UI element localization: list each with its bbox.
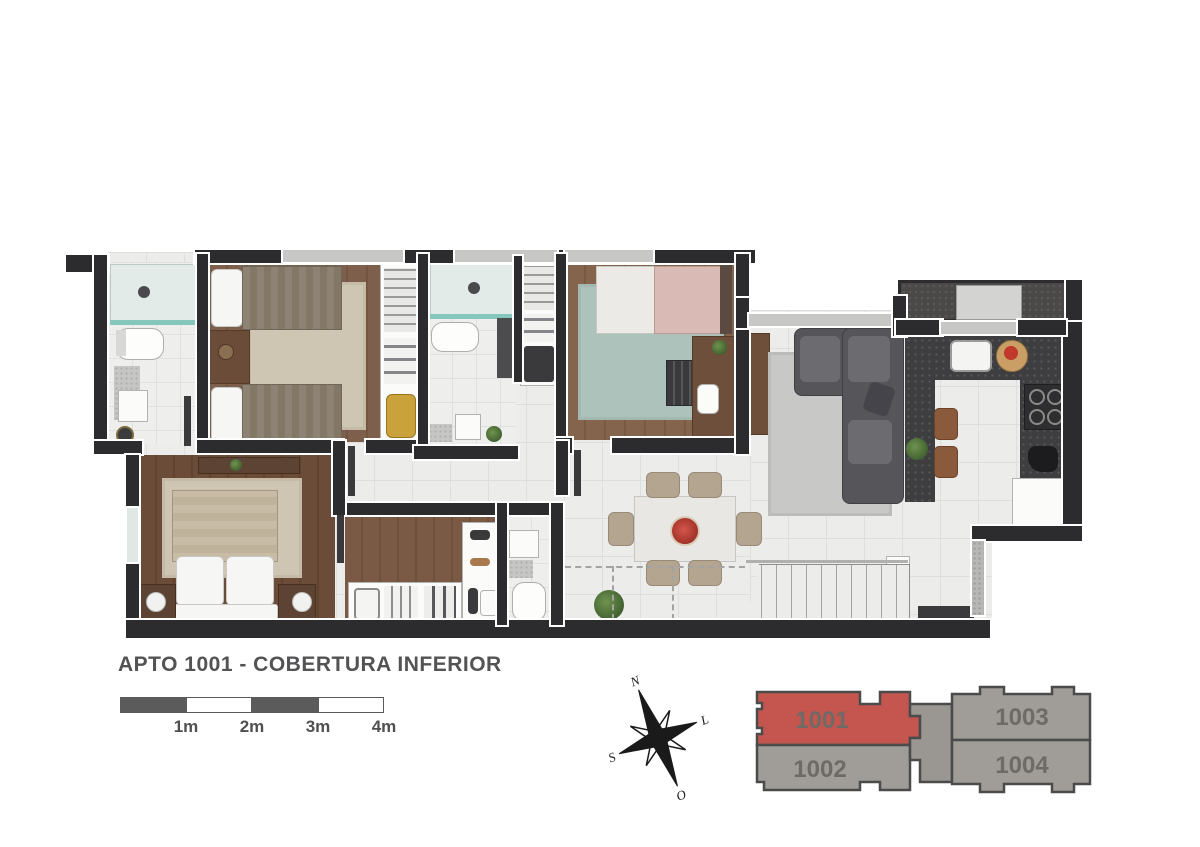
stair-rail bbox=[746, 560, 908, 563]
sliding-door-threshold bbox=[918, 606, 974, 619]
service-appliance bbox=[956, 285, 1022, 320]
projection-line-1 bbox=[612, 566, 614, 620]
shoe-pair-1-icon bbox=[470, 530, 490, 540]
closet2-hangers-icon bbox=[524, 266, 554, 310]
closet1-shoes-icon bbox=[384, 338, 416, 384]
scale-segment-3 bbox=[252, 697, 318, 713]
dining-chair-right bbox=[736, 512, 762, 546]
wardrobe-bag-icon bbox=[354, 588, 380, 620]
wall-closet2-bedroom2 bbox=[556, 254, 566, 452]
nightstand-right-stool-icon bbox=[292, 592, 312, 612]
coffee-maker-icon bbox=[1028, 446, 1058, 472]
wall-left bbox=[94, 255, 107, 455]
stove-burner-1 bbox=[1029, 389, 1045, 405]
page-title: APTO 1001 - COBERTURA INFERIOR bbox=[118, 653, 502, 677]
master-sideboard bbox=[198, 457, 300, 474]
wardrobe-hangers-icon bbox=[384, 586, 418, 618]
compass-south-label: S bbox=[606, 749, 618, 766]
key-plan-label-1003: 1003 bbox=[995, 704, 1048, 731]
scale-label-1m: 1m bbox=[164, 717, 208, 737]
dining-chair-left bbox=[608, 512, 634, 546]
double-bed-blanket bbox=[654, 266, 722, 334]
twin-bed2-pillow bbox=[211, 387, 243, 443]
shower-glass-panel bbox=[110, 320, 196, 325]
key-plan: 1001 1002 1003 1004 bbox=[752, 682, 1097, 812]
closet1-bag-icon bbox=[386, 394, 416, 438]
scale-label-4m: 4m bbox=[362, 717, 406, 737]
kitchen-sink bbox=[950, 340, 992, 372]
wall-bedroom2-living bbox=[736, 254, 749, 454]
window-living bbox=[749, 314, 895, 326]
sink-vanity bbox=[118, 390, 148, 422]
stove-burner-4 bbox=[1047, 409, 1063, 425]
double-bed-mattress bbox=[596, 266, 656, 334]
scale-segment-2 bbox=[186, 697, 252, 713]
toilet2 bbox=[431, 322, 479, 352]
compass-star-icon: N L S O bbox=[598, 668, 718, 808]
window-kitchen bbox=[941, 322, 1019, 334]
scale-segment-4 bbox=[318, 697, 384, 713]
wall-living-jamb-left bbox=[736, 298, 749, 328]
island-plant-icon bbox=[906, 438, 928, 460]
bath3-mat bbox=[509, 560, 533, 578]
wall-bath3-right bbox=[551, 503, 563, 625]
window-bedroom1 bbox=[283, 250, 403, 262]
stairs bbox=[746, 564, 910, 622]
key-plan-diagram: 1001 1002 1003 1004 bbox=[752, 682, 1097, 807]
compass-west-label: O bbox=[674, 786, 689, 804]
toilet-cistern bbox=[116, 330, 126, 356]
door-bedroom2 bbox=[574, 450, 581, 496]
wall-bathroom2-left bbox=[418, 254, 428, 453]
sofa-cushion-3 bbox=[848, 420, 892, 464]
wall-bedroom1-bottom-a bbox=[197, 440, 343, 453]
shower2-head-icon bbox=[468, 282, 480, 294]
door-bedroom1 bbox=[348, 446, 355, 496]
wall-bath3-left bbox=[497, 503, 507, 625]
wall-bath1-bedroom1 bbox=[197, 254, 208, 452]
wall-kitchen-jamb-left bbox=[896, 320, 942, 335]
sideboard-plant-icon bbox=[230, 459, 242, 471]
bath3-vanity bbox=[509, 530, 539, 558]
wall-master-right-stub bbox=[333, 441, 345, 515]
compass-rose: N L S O bbox=[598, 668, 718, 813]
dining-chair-top1 bbox=[646, 472, 680, 498]
desk-chair bbox=[697, 384, 719, 414]
outside-mask-right bbox=[992, 543, 1200, 663]
window-bedroom2 bbox=[565, 250, 653, 262]
dining-chair-bottom2 bbox=[688, 560, 722, 586]
shoe-basket-icon bbox=[480, 590, 498, 616]
wall-kitchen-right bbox=[1063, 322, 1082, 542]
closet2-drawers bbox=[524, 346, 554, 382]
master-bed-pillow-left bbox=[176, 556, 224, 606]
wardrobe-shoes-icon bbox=[424, 586, 456, 618]
dining-chair-top2 bbox=[688, 472, 722, 498]
desk-plant-icon bbox=[712, 340, 727, 355]
key-plan-core-shape bbox=[910, 704, 952, 782]
twin-bed1 bbox=[242, 266, 342, 330]
fridge bbox=[1012, 478, 1062, 528]
key-plan-label-1001: 1001 bbox=[795, 707, 848, 734]
shower-head-icon bbox=[138, 286, 150, 298]
nightstand-left-stool-icon bbox=[146, 592, 166, 612]
scale-label-2m: 2m bbox=[230, 717, 274, 737]
scale-segment-1 bbox=[120, 697, 186, 713]
window-bathroom2 bbox=[455, 250, 557, 262]
wall-bath2-closet2 bbox=[514, 256, 522, 382]
sofa-cushion-1 bbox=[800, 336, 840, 382]
dining-chair-bottom1 bbox=[646, 560, 680, 586]
outside-mask-left bbox=[58, 456, 124, 656]
upper-floor-projection-line bbox=[565, 566, 745, 568]
twin-bed1-pillow bbox=[211, 269, 243, 327]
floor-plan-page: APTO 1001 - COBERTURA INFERIOR 1m 2m 3m … bbox=[0, 0, 1200, 847]
hall-sink bbox=[455, 414, 481, 440]
twin-bed2 bbox=[242, 384, 342, 444]
double-bed-headboard bbox=[720, 264, 732, 334]
tomatoes-icon bbox=[1004, 346, 1018, 360]
tv-panel bbox=[748, 333, 770, 435]
wall-kitchen-bottom bbox=[972, 526, 1082, 541]
shoe-pair-2-icon bbox=[470, 558, 490, 566]
wall-dining-left-stub bbox=[556, 441, 568, 495]
scale-label-3m: 3m bbox=[296, 717, 340, 737]
stove-burner-2 bbox=[1047, 389, 1063, 405]
wall-bedroom2-bottom-b bbox=[612, 438, 740, 453]
compass-east-label: L bbox=[697, 711, 710, 728]
bar-stool-1 bbox=[934, 408, 958, 440]
projection-line-2 bbox=[672, 566, 674, 620]
wall-hall-bath2-bottom bbox=[414, 446, 518, 459]
nightstand-decor-icon bbox=[218, 344, 234, 360]
master-bed-blanket bbox=[172, 490, 278, 562]
door-corridor bbox=[337, 515, 344, 563]
wall-bath1-bottom bbox=[94, 441, 142, 454]
hall-mat bbox=[428, 424, 452, 442]
shower-tray bbox=[110, 264, 198, 322]
key-plan-label-1004: 1004 bbox=[995, 752, 1049, 779]
wall-corridor-top bbox=[345, 503, 560, 515]
master-bed-foot bbox=[172, 604, 278, 620]
balcony-screen bbox=[972, 541, 984, 615]
fruit-bowl-icon bbox=[670, 516, 700, 546]
window-master bbox=[127, 508, 138, 562]
dining-plant-icon bbox=[594, 590, 624, 620]
compass-north-label: N bbox=[627, 672, 643, 690]
vanity2 bbox=[497, 318, 513, 378]
door-bathroom1 bbox=[184, 396, 191, 446]
wall-kitchen-jamb-right bbox=[1018, 320, 1066, 335]
scale-bar: 1m 2m 3m 4m bbox=[120, 697, 420, 742]
sofa-cushion-2 bbox=[848, 336, 890, 382]
key-plan-label-1002: 1002 bbox=[793, 756, 846, 783]
bar-stool-2 bbox=[934, 446, 958, 478]
shoe-pair-3-icon bbox=[468, 588, 478, 614]
closet1-hangers-icon bbox=[384, 268, 416, 332]
toilet3 bbox=[512, 582, 546, 622]
wall-terrace-right bbox=[1066, 280, 1082, 326]
stove-burner-3 bbox=[1029, 409, 1045, 425]
closet2-shoes-icon bbox=[524, 314, 554, 342]
master-bed-pillow-right bbox=[226, 556, 274, 606]
hall-plant-icon bbox=[486, 426, 502, 442]
